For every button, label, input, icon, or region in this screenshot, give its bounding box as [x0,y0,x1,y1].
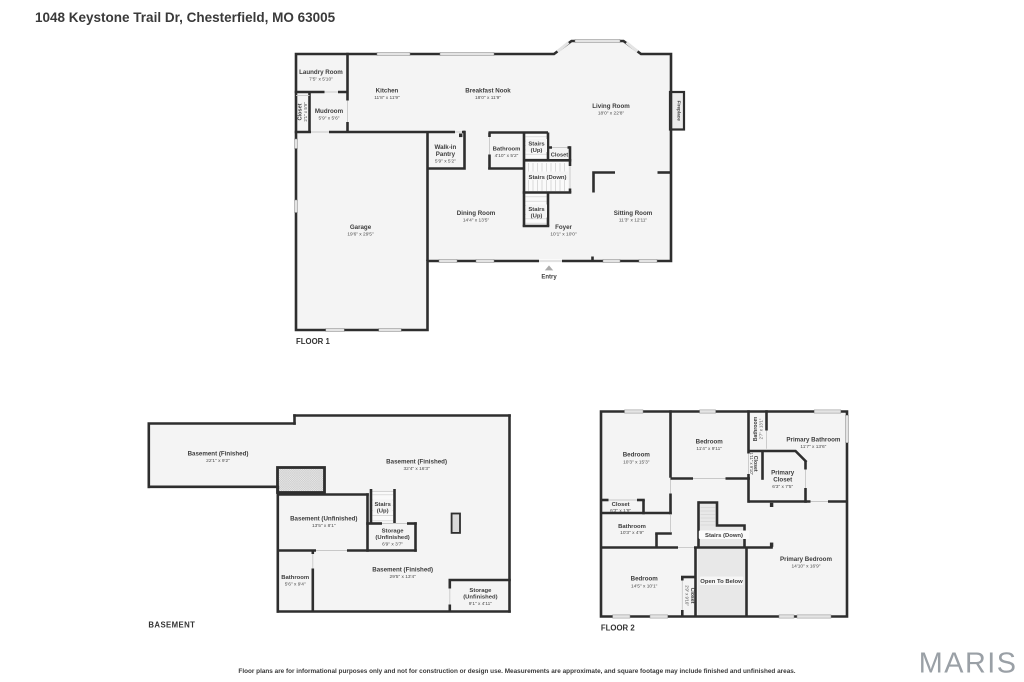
svg-text:Bathroom: Bathroom [281,575,309,581]
svg-text:Storage: Storage [382,529,405,535]
svg-text:14'4" x 13'5": 14'4" x 13'5" [463,218,490,224]
svg-text:Bathroom: Bathroom [493,147,521,153]
svg-text:Primary: Primary [771,470,795,477]
svg-text:Pantry: Pantry [436,151,456,158]
svg-text:Basement (Finished): Basement (Finished) [372,567,433,574]
svg-text:32'4" x 16'3": 32'4" x 16'3" [403,466,430,472]
svg-text:Closet: Closet [773,477,792,484]
svg-text:11'7" x 13'6": 11'7" x 13'6" [800,444,826,450]
svg-text:FLOOR 2: FLOOR 2 [601,624,635,633]
svg-text:2'7" x 13'1": 2'7" x 13'1" [758,418,763,439]
svg-text:Entry: Entry [541,275,557,281]
svg-text:Closet: Closet [551,153,568,159]
svg-text:Stairs: Stairs [375,502,392,508]
svg-text:Primary Bedroom: Primary Bedroom [780,556,832,563]
svg-text:Open To Below: Open To Below [700,579,743,585]
svg-text:2'9" x 9'10": 2'9" x 9'10" [685,585,690,606]
svg-text:4'10" x 5'2": 4'10" x 5'2" [495,153,519,159]
svg-text:Living Room: Living Room [592,103,630,110]
svg-text:Stairs: Stairs [528,142,545,148]
svg-text:Basement (Finished): Basement (Finished) [386,459,447,466]
svg-text:(Up): (Up) [531,214,543,220]
svg-text:Bedroom: Bedroom [623,452,651,459]
svg-text:Garage: Garage [350,224,372,231]
svg-text:22'1" x 9'2": 22'1" x 9'2" [206,458,230,464]
svg-text:Dining Room: Dining Room [457,210,496,217]
svg-text:18'0" x 11'9": 18'0" x 11'9" [475,95,501,101]
svg-text:Closet: Closet [612,502,630,508]
svg-text:11'4" x 9'11": 11'4" x 9'11" [696,446,722,452]
svg-text:(Unfinished): (Unfinished) [463,595,497,601]
svg-text:Stairs (Down): Stairs (Down) [529,175,567,181]
svg-text:6'3" x 7'5": 6'3" x 7'5" [772,484,793,490]
svg-text:Basement (Unfinished): Basement (Unfinished) [290,516,357,523]
svg-text:(Unfinished): (Unfinished) [375,535,409,541]
svg-text:14'10" x 16'9": 14'10" x 16'9" [792,564,821,570]
svg-text:2'1" x 5'9": 2'1" x 5'9" [303,102,308,122]
svg-text:Bathroom: Bathroom [618,524,646,530]
svg-text:14'5" x 10'1": 14'5" x 10'1" [631,583,658,589]
svg-text:1'11" x 9'10": 1'11" x 9'10" [749,452,754,475]
svg-text:5'6" x 9'4": 5'6" x 9'4" [285,582,306,588]
svg-text:Kitchen: Kitchen [376,88,399,95]
svg-text:Fireplace: Fireplace [676,101,681,122]
svg-text:Bedroom: Bedroom [631,576,659,583]
svg-text:(Up): (Up) [531,148,543,154]
svg-text:13'5" x 8'1": 13'5" x 8'1" [312,523,336,529]
svg-text:29'5" x 13'4": 29'5" x 13'4" [390,574,417,580]
svg-text:18'0" x 22'8": 18'0" x 22'8" [598,111,625,117]
svg-text:MARIS: MARIS [919,648,1018,680]
svg-text:Primary Bathroom: Primary Bathroom [786,437,840,444]
svg-text:Stairs (Down): Stairs (Down) [705,533,743,539]
svg-text:Walk-in: Walk-in [435,144,457,151]
svg-text:Mudroom: Mudroom [315,108,344,115]
svg-text:FLOOR 1: FLOOR 1 [296,337,330,346]
svg-text:Sitting Room: Sitting Room [614,210,653,217]
svg-text:6'9" x 3'7": 6'9" x 3'7" [382,541,403,547]
svg-text:5'9" x 5'2": 5'9" x 5'2" [435,159,456,165]
svg-text:(Up): (Up) [377,508,389,514]
svg-text:5'9" x 5'6": 5'9" x 5'6" [319,116,340,122]
svg-text:Laundry Room: Laundry Room [299,69,343,76]
svg-text:10'3" x 4'9": 10'3" x 4'9" [620,530,644,536]
svg-text:7'5" x 5'10": 7'5" x 5'10" [309,77,333,83]
svg-text:Stairs: Stairs [528,207,545,213]
svg-text:1048 Keystone Trail Dr, Cheste: 1048 Keystone Trail Dr, Chesterfield, MO… [35,10,336,25]
svg-text:11'8" x 11'9": 11'8" x 11'9" [374,95,400,101]
svg-text:19'6" x 29'5": 19'6" x 29'5" [347,232,374,238]
svg-text:10'3" x 15'3": 10'3" x 15'3" [623,459,650,465]
svg-text:Floor plans are for informatio: Floor plans are for informational purpos… [238,668,795,675]
svg-text:10'1" x 10'0": 10'1" x 10'0" [550,232,577,238]
svg-text:BASEMENT: BASEMENT [148,621,195,630]
svg-text:Bedroom: Bedroom [696,438,724,445]
svg-text:9'1" x 4'11": 9'1" x 4'11" [469,601,493,607]
svg-text:Foyer: Foyer [555,224,572,231]
svg-text:Storage: Storage [469,588,492,594]
svg-text:6'3" x 1'9": 6'3" x 1'9" [610,508,631,514]
svg-text:11'3" x 12'11": 11'3" x 12'11" [619,218,648,224]
svg-text:Basement (Finished): Basement (Finished) [188,451,249,458]
svg-text:Breakfast Nook: Breakfast Nook [465,88,511,95]
